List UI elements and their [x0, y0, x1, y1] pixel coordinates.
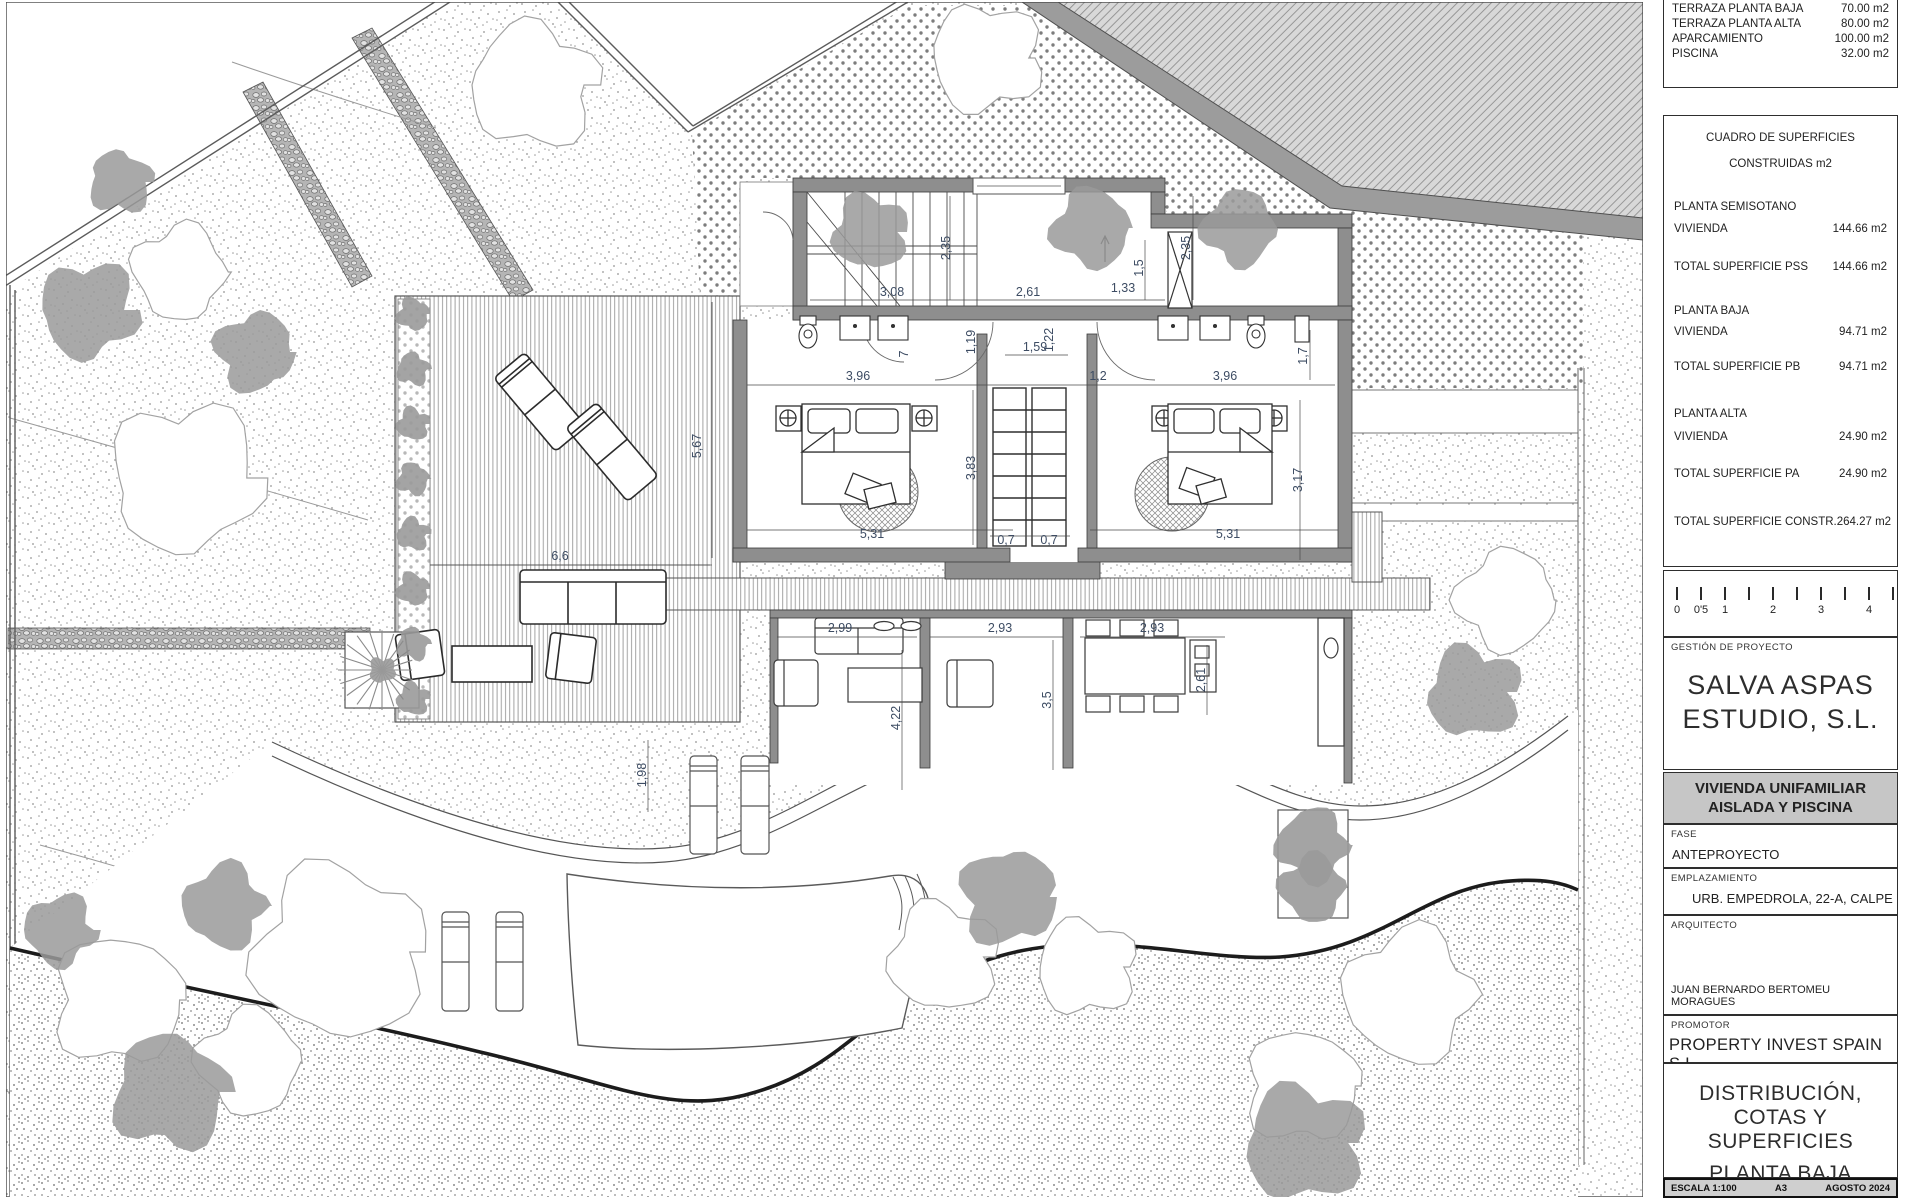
table-row: TERRAZA PLANTA BAJA70.00 m2: [1664, 1, 1897, 16]
dimension-label: 0,7: [997, 533, 1014, 547]
emplazamiento-value: URB. EMPEDROLA, 22-A, CALPE: [1692, 891, 1893, 906]
dimension-label: 1,5: [1132, 259, 1146, 276]
dimension-label: 3,08: [880, 285, 904, 299]
title-block: TERRAZA PLANTA BAJA70.00 m2 TERRAZA PLAN…: [1655, 0, 1920, 1200]
table-row: TERRAZA PLANTA ALTA80.00 m2: [1664, 16, 1897, 31]
promotor-box: PROMOTOR PROPERTY INVEST SPAIN S.L.: [1663, 1015, 1898, 1063]
dimension-label: 1,2: [1089, 369, 1106, 383]
fase-value: ANTEPROYECTO: [1672, 847, 1779, 862]
dimension-label: 1,19: [964, 330, 978, 354]
dimension-label: 2,61: [1194, 668, 1208, 692]
management-box: GESTIÓN DE PROYECTO SALVA ASPAS ESTUDIO,…: [1663, 637, 1898, 770]
scale-text: ESCALA 1:100: [1671, 1183, 1737, 1194]
plan-sheet: { "sheet": { "terrace_table": { "rows": …: [0, 0, 1920, 1200]
footer-bar: ESCALA 1:100 A3 AGOSTO 2024: [1663, 1178, 1898, 1198]
shrub: [959, 852, 1058, 946]
swimming-pool: [567, 874, 929, 1049]
dimension-label: 0,7: [1040, 533, 1057, 547]
terrace-areas-table: TERRAZA PLANTA BAJA70.00 m2 TERRAZA PLAN…: [1663, 0, 1898, 88]
dimension-label: 1,22: [1042, 328, 1056, 352]
dimension-label: 7: [897, 350, 911, 357]
dimension-label: 2,93: [988, 621, 1012, 635]
dimension-label: 3,96: [1213, 369, 1237, 383]
dimension-label: 2,93: [1140, 621, 1164, 635]
dimension-label: 3,5: [1040, 691, 1054, 708]
dimension-label: 2,35: [939, 236, 953, 260]
dimension-label: 1,98: [635, 763, 649, 787]
surfaces-subtitle: CONSTRUIDAS m2: [1664, 158, 1897, 170]
drawing-title-box: DISTRIBUCIÓN, COTAS Y SUPERFICIES PLANTA…: [1663, 1063, 1898, 1178]
dimension-label: 5,31: [1216, 527, 1240, 541]
arquitecto-box: ARQUITECTO JUAN BERNARDO BERTOMEU MORAGU…: [1663, 915, 1898, 1015]
dimension-label: 1,7: [1296, 347, 1310, 364]
graphic-scale-bar: 0 0'5 1 2 3 4: [1663, 570, 1898, 637]
format-text: A3: [1775, 1183, 1787, 1194]
dimension-label: 1,33: [1111, 281, 1135, 295]
site-plan-drawing: 3,082,352,612,351,331,51,191,591,2273,96…: [0, 0, 1655, 1200]
emplazamiento-box: EMPLAZAMIENTO URB. EMPEDROLA, 22-A, CALP…: [1663, 868, 1898, 915]
dimension-label: 5,31: [860, 527, 884, 541]
table-row: PISCINA32.00 m2: [1664, 46, 1897, 61]
dimension-label: 3,83: [964, 456, 978, 480]
date-text: AGOSTO 2024: [1825, 1183, 1890, 1194]
dimension-label: 4,22: [889, 706, 903, 730]
arquitecto-value: JUAN BERNARDO BERTOMEU MORAGUES: [1671, 984, 1897, 1008]
studio-name-line1: SALVA ASPAS: [1664, 670, 1897, 701]
dimension-label: 6,6: [551, 549, 568, 563]
project-name-band: VIVIENDA UNIFAMILIAR AISLADA Y PISCINA: [1663, 772, 1898, 824]
fase-box: FASE ANTEPROYECTO: [1663, 824, 1898, 868]
dimension-label: 3,17: [1291, 468, 1305, 492]
studio-name-line2: ESTUDIO, S.L.: [1664, 704, 1897, 735]
surfaces-title: CUADRO DE SUPERFICIES: [1664, 132, 1897, 144]
management-label: GESTIÓN DE PROYECTO: [1671, 642, 1793, 653]
dimension-label: 2,61: [1016, 285, 1040, 299]
dimension-label: 5,67: [690, 434, 704, 458]
table-row: APARCAMIENTO100.00 m2: [1664, 31, 1897, 46]
dimension-label: 2,35: [1179, 236, 1193, 260]
dimension-label: 3,96: [846, 369, 870, 383]
dimension-label: 2,99: [828, 621, 852, 635]
surfaces-table: CUADRO DE SUPERFICIES CONSTRUIDAS m2 PLA…: [1663, 115, 1898, 567]
